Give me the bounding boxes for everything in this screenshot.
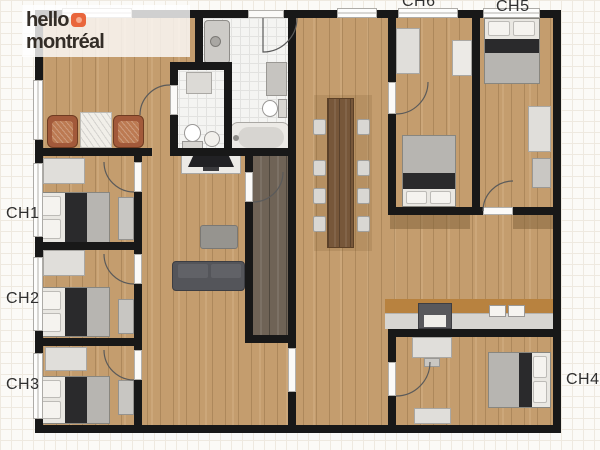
room-label-ch5: CH5 [496,0,530,16]
door-swing-arcs [0,0,600,450]
room-label-ch1: CH1 [6,205,40,223]
logo-word-hello: hello [26,10,69,30]
logo-word-montreal: montréal [26,32,104,52]
floor-plan: CH1 CH2 CH3 CH4 CH5 CH6 hello montréal [0,0,600,450]
room-label-ch6: CH6 [402,0,436,11]
room-label-ch2: CH2 [6,290,40,308]
logo-speech-bubble-icon [71,13,86,27]
room-label-ch4: CH4 [566,371,600,389]
room-label-ch3: CH3 [6,376,40,394]
hello-montreal-logo: hello montréal [22,5,190,57]
